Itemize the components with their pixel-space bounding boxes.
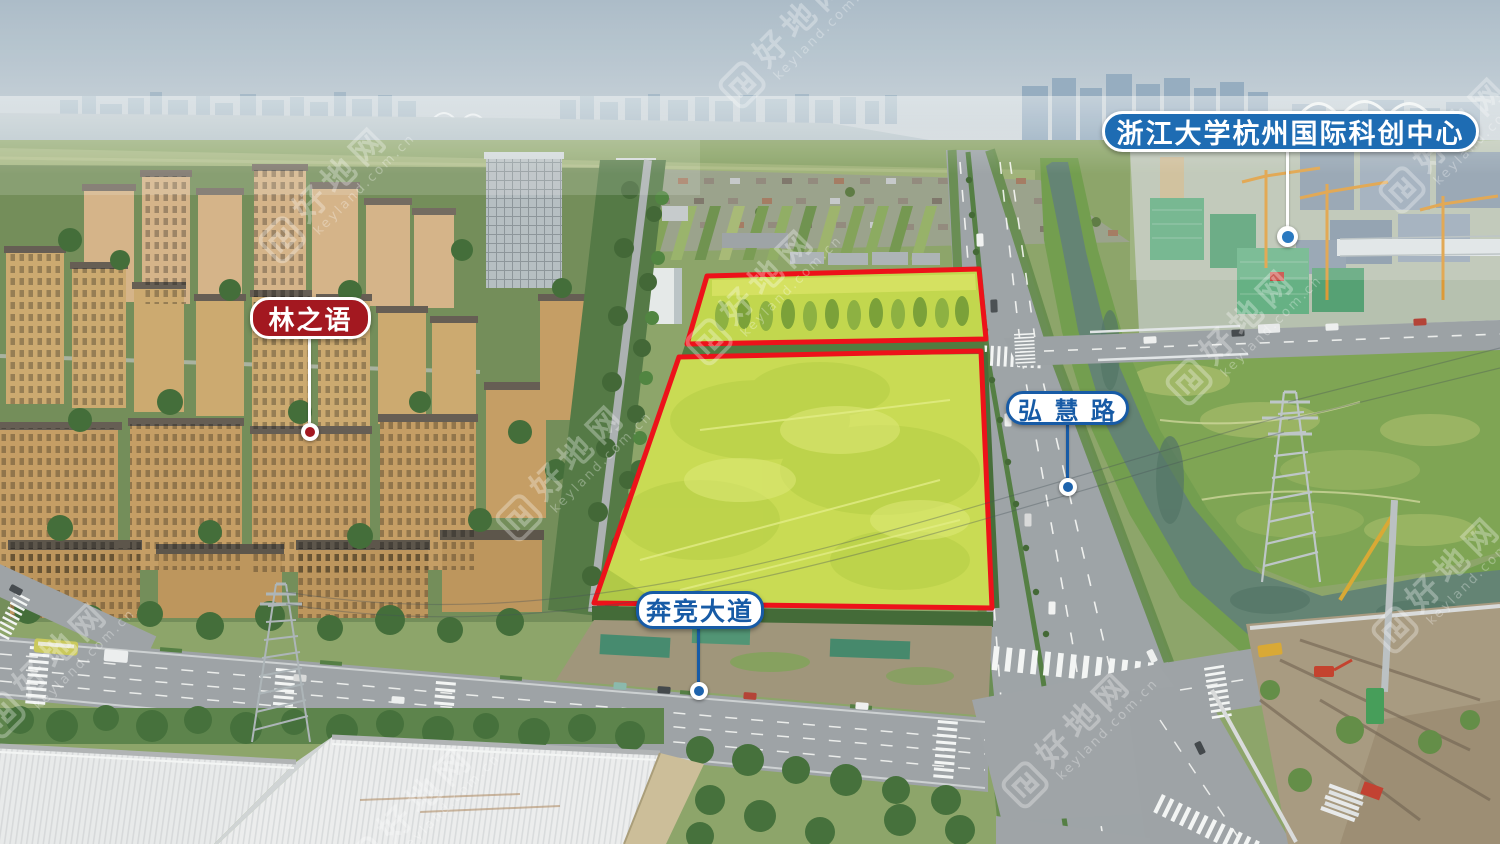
location-dot-sci-center <box>1277 226 1298 247</box>
leader-sci-center <box>1286 152 1289 227</box>
label-sci-center: 浙江大学杭州国际科创中心 <box>1102 111 1479 152</box>
label-hong-hui-road: 弘 慧 路 <box>1006 391 1129 425</box>
label-lin-zhi-yu-text: 林之语 <box>268 300 352 337</box>
location-dot-ben-jing-avenue <box>690 682 708 700</box>
location-dot-lin-zhi-yu <box>301 423 319 441</box>
label-ben-jing-avenue-text: 奔竞大道 <box>646 592 754 628</box>
label-ben-jing-avenue: 奔竞大道 <box>636 591 764 629</box>
label-lin-zhi-yu: 林之语 <box>250 297 371 339</box>
leader-hong-hui-road <box>1066 425 1069 478</box>
label-hong-hui-road-text: 弘 慧 路 <box>1018 391 1117 426</box>
location-dot-hong-hui-road <box>1059 478 1077 496</box>
aerial-land-plot-photo: 好地网keyland.com.cn 好地网keyland.com.cn 好地网k… <box>0 0 1500 844</box>
leader-ben-jing-avenue <box>697 629 700 682</box>
leader-lin-zhi-yu <box>308 339 311 423</box>
label-sci-center-text: 浙江大学杭州国际科创中心 <box>1117 112 1465 151</box>
